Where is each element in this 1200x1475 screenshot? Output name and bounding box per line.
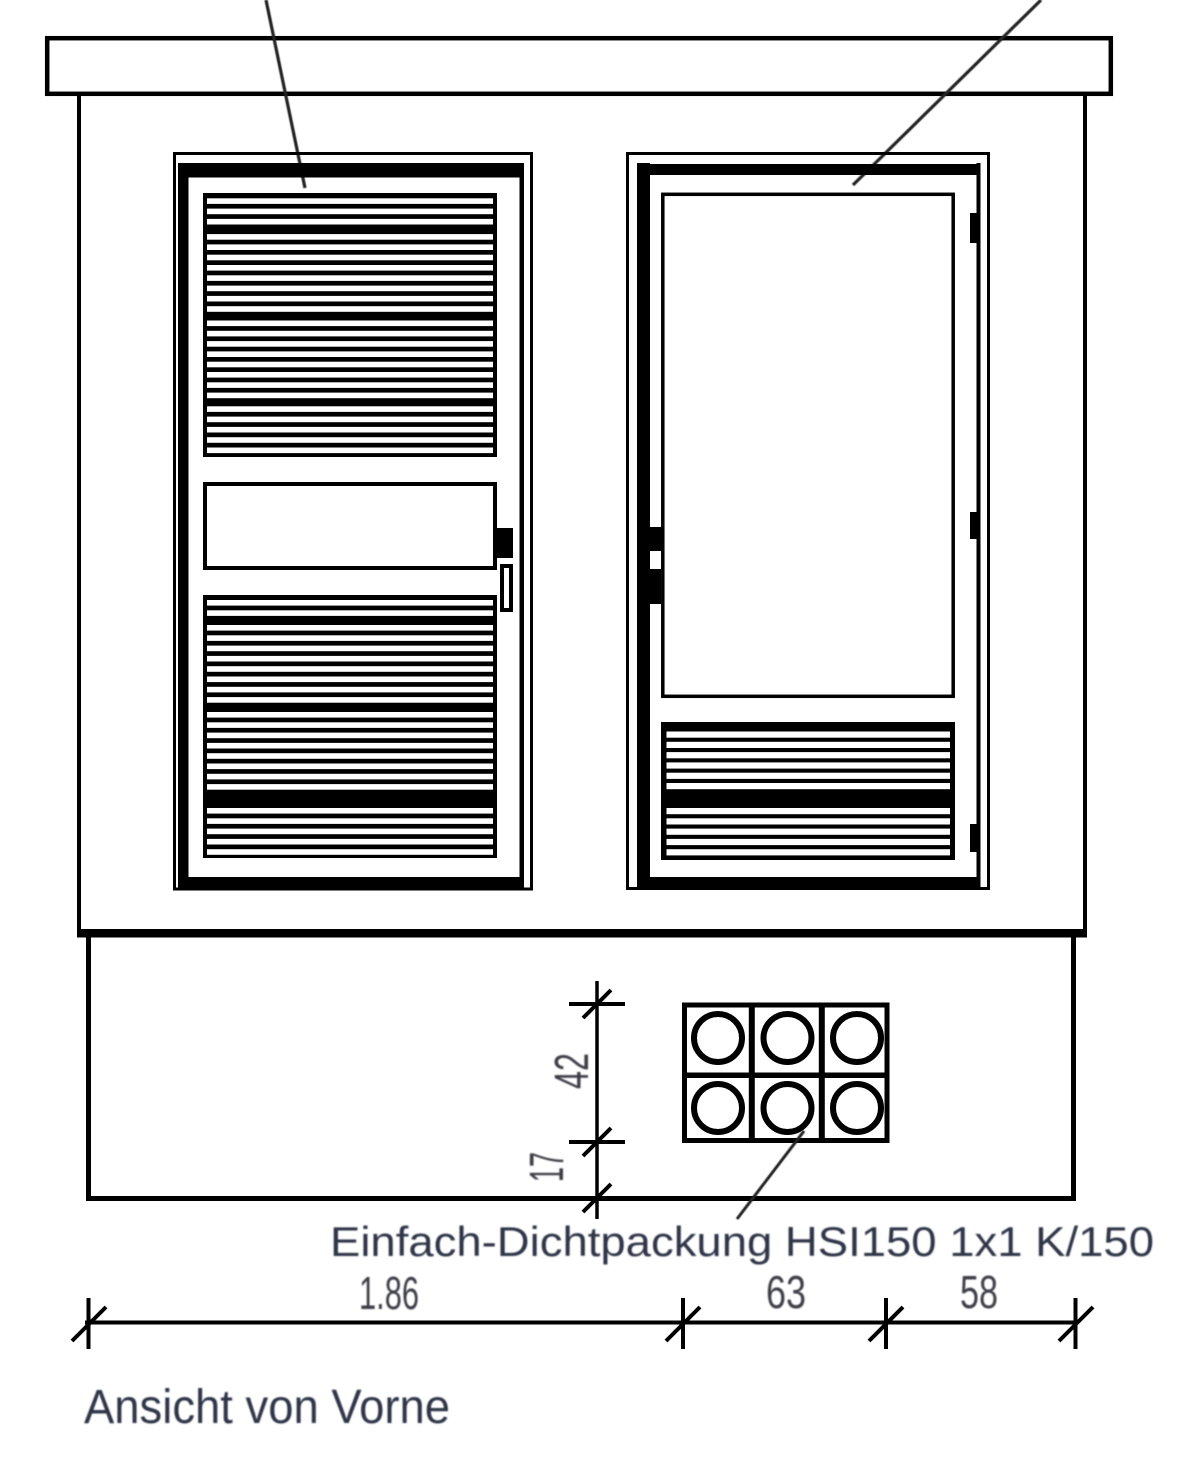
svg-text:63: 63 [766,1266,806,1318]
svg-text:17: 17 [521,1152,574,1182]
svg-text:58: 58 [960,1266,998,1318]
svg-text:Einfach-Dichtpackung HSI150 1x: Einfach-Dichtpackung HSI150 1x1 K/150 [330,1218,1154,1265]
svg-text:1.86: 1.86 [359,1267,419,1319]
svg-text:Ansicht von Vorne: Ansicht von Vorne [84,1381,450,1434]
svg-text:42: 42 [546,1053,599,1089]
